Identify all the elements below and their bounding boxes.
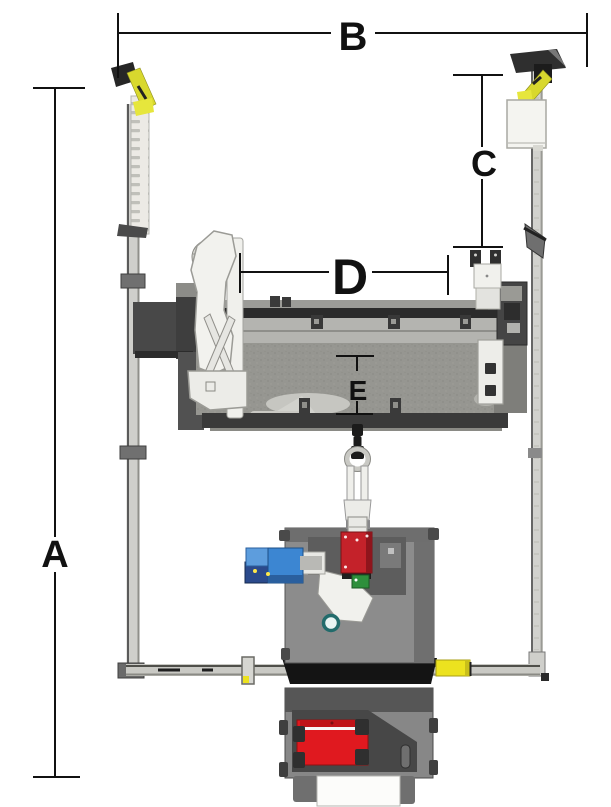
hitch-bolt-pin (474, 254, 477, 257)
left-rail (117, 96, 149, 678)
trailer-side-tab (279, 762, 288, 777)
dimension-a-label: A (41, 534, 68, 576)
green-module (352, 575, 369, 588)
engine-bolt (366, 535, 369, 538)
red-engine-edge (366, 532, 372, 573)
engine-bolt (344, 536, 347, 539)
panel-corner-bracket (293, 726, 305, 742)
bottom-rail-stop-marker (243, 676, 249, 683)
power-unit-panel-pin (388, 548, 394, 554)
power-unit-tab (281, 648, 290, 660)
header-unit (133, 231, 527, 431)
trailer-box-top-band (285, 688, 433, 712)
trailer-side-tab (429, 718, 438, 733)
hitch-block-pin (486, 275, 489, 278)
left-rail-collar (120, 446, 146, 459)
panel-corner-bracket (355, 719, 369, 735)
right-control-box-mount (533, 145, 543, 151)
light-blue-valve (246, 548, 270, 566)
engine-block (341, 532, 372, 573)
power-unit-shadow (414, 542, 434, 663)
chain-link (352, 424, 363, 436)
dimension-e-label: E (349, 375, 368, 406)
hitch-block-lower (476, 288, 500, 309)
shackle-bar (361, 466, 368, 502)
chain-link-assembly (344, 424, 371, 549)
left-crank-mechanism (188, 231, 247, 418)
right-end-block-plate (501, 286, 522, 301)
shackle-bar (347, 466, 354, 502)
deck-clip-pin (302, 402, 307, 408)
diagram-canvas: B A C D E (0, 0, 611, 807)
trailer-side-tab (429, 760, 438, 775)
trailer-handle-slot (401, 745, 410, 768)
panel-corner-bracket (355, 749, 369, 765)
right-control-box (507, 100, 546, 148)
valve-indicator (266, 572, 270, 576)
engine-bolt (356, 539, 359, 542)
teal-coupler (324, 616, 339, 631)
right-end-block-pin (507, 323, 520, 333)
dimension-b-label: B (339, 15, 368, 59)
power-unit-tab (279, 530, 290, 541)
trailer-box (279, 688, 438, 806)
left-carrier-arm-step (176, 283, 196, 297)
valve-indicator (253, 569, 257, 573)
left-carrier-arm (133, 302, 180, 354)
right-link-bolt (485, 385, 496, 396)
dimension-a (33, 88, 85, 777)
chain-link (354, 436, 362, 447)
panel-corner-bracket (293, 752, 305, 768)
band-clip-pin (391, 319, 396, 324)
right-rail (524, 70, 546, 676)
trailer-white-plate (317, 776, 400, 806)
top-bar-tab (282, 297, 291, 307)
dimension-d-label: D (332, 249, 368, 305)
machine-dimension-diagram: B A C D E (0, 0, 611, 807)
dimension-c-label: C (471, 143, 497, 184)
rail-corner-foot (541, 673, 549, 681)
rail-yellow-slider-cap (465, 660, 470, 676)
trailer-side-tab (279, 720, 288, 735)
rail-yellow-slider (436, 660, 470, 676)
right-link-bolt (485, 363, 496, 374)
left-rail-collar (121, 274, 145, 288)
valve-arm (300, 556, 322, 570)
green-module-pin (355, 579, 358, 582)
blue-valve-base (268, 575, 303, 583)
top-bar-tab (270, 296, 280, 307)
power-unit-tab (428, 528, 439, 540)
right-rail-collar (528, 448, 542, 458)
left-rail-rack (131, 96, 149, 234)
deck-clip-pin (393, 402, 398, 408)
power-unit-panel (380, 543, 401, 568)
band-clip-pin (314, 319, 319, 324)
right-end-block-slot (504, 303, 520, 320)
panel-bolt (331, 722, 334, 725)
band-clip-pin (463, 319, 468, 324)
right-sensor-mast (507, 49, 566, 151)
hitch-bolt-pin (494, 254, 497, 257)
engine-bolt (344, 566, 347, 569)
